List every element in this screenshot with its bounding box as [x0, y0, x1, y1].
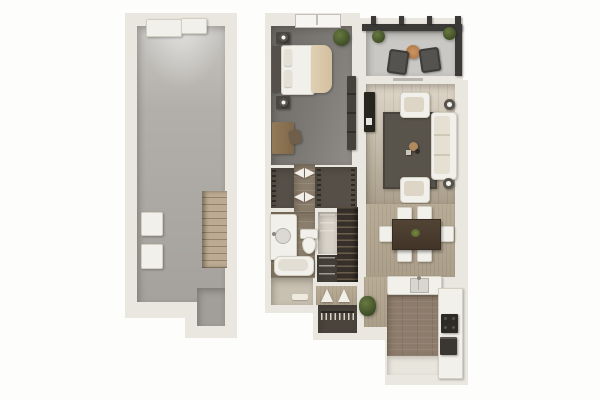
- entry-floor: [387, 356, 438, 375]
- patio-chair: [418, 47, 441, 74]
- stove-burner: [444, 326, 447, 329]
- water-heater-box: [141, 212, 163, 236]
- lower-appliance: [440, 337, 457, 355]
- bed-pillow: [284, 70, 292, 87]
- balcony-plant: [372, 30, 385, 43]
- pergola-post: [427, 16, 432, 24]
- stove-burner: [452, 317, 455, 320]
- table-lamp: [279, 98, 288, 107]
- under-stair-shelves: [319, 257, 335, 280]
- coffee-table-square: [406, 150, 411, 155]
- kitchen-counter-run: [438, 288, 463, 379]
- garage-door-panel: [146, 19, 182, 37]
- tv-console-item: [366, 118, 372, 125]
- bathmat: [292, 294, 308, 300]
- wardrobe: [347, 76, 356, 150]
- door-swing: [338, 289, 350, 302]
- balcony-plant: [443, 27, 456, 40]
- bathtub-basin: [278, 259, 308, 271]
- door-swing: [305, 168, 315, 178]
- balcony-railing: [455, 24, 462, 76]
- balcony-door: [393, 78, 423, 81]
- door-swing: [321, 289, 333, 302]
- coffee-table-small: [415, 149, 420, 154]
- floor-lamp: [443, 178, 454, 189]
- closet-rod-marks: [351, 169, 355, 206]
- vanity-sink: [275, 228, 291, 244]
- armchair-cushion: [404, 181, 424, 196]
- stove-burner: [444, 317, 447, 320]
- floor-lamp: [444, 99, 455, 110]
- sofa-cushions: [434, 116, 450, 174]
- storage-box: [141, 244, 163, 269]
- bedroom-plant: [333, 29, 350, 46]
- floor-plan-canvas: [0, 0, 600, 400]
- hallway-plant: [359, 296, 376, 316]
- tv-console: [364, 92, 375, 132]
- kitchen-sink-divider: [418, 279, 419, 290]
- door-swing: [294, 192, 304, 202]
- pergola-post: [455, 16, 461, 24]
- pergola-post: [399, 16, 404, 24]
- kitchen-faucet: [417, 276, 421, 280]
- stove-burner: [452, 326, 455, 329]
- closet-rod-marks: [317, 169, 321, 206]
- bedroom-window-mullion: [316, 15, 318, 25]
- door-swing: [305, 192, 315, 202]
- dining-chair: [440, 226, 454, 242]
- garage-floor-extension: [197, 288, 225, 326]
- table-lamp: [279, 33, 288, 42]
- linen-shelf-lines: [320, 214, 335, 238]
- kitchen-sink: [410, 278, 429, 293]
- bed-headboard: [272, 46, 281, 92]
- vanity-faucet: [272, 232, 276, 236]
- bed-pillow: [284, 49, 292, 66]
- garage-door-panel: [181, 18, 207, 34]
- hallway-floor: [271, 278, 313, 305]
- armchair-cushion: [404, 97, 424, 112]
- pergola-post: [371, 16, 376, 24]
- table-centerpiece: [411, 229, 420, 237]
- desk-chair: [288, 129, 303, 145]
- dining-chair: [417, 206, 432, 220]
- closet-rod-marks: [272, 170, 276, 206]
- garage-stairs: [202, 191, 227, 268]
- door-swing: [294, 168, 304, 178]
- coat-closet-hangers: [321, 313, 354, 320]
- bed-blanket: [311, 45, 332, 93]
- patio-chair: [386, 49, 409, 76]
- dining-chair: [379, 226, 393, 242]
- bedroom-window: [295, 14, 341, 28]
- interior-stairs: [337, 207, 358, 282]
